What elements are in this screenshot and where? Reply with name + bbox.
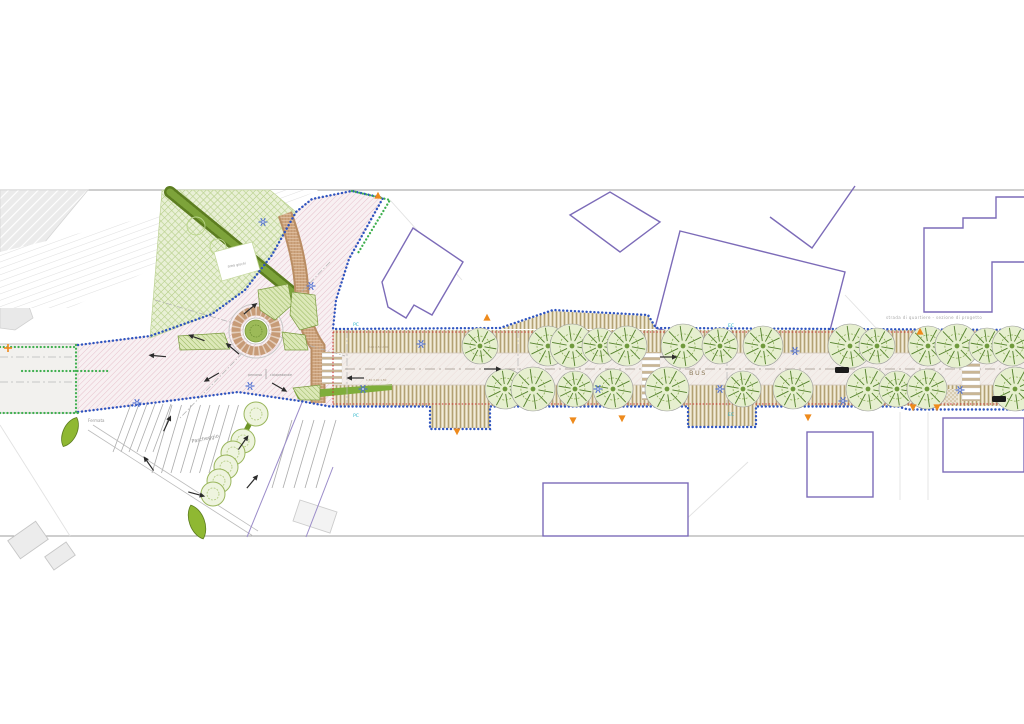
tree-trunk bbox=[741, 387, 746, 392]
street-tree bbox=[645, 367, 689, 411]
building-outline bbox=[570, 192, 660, 252]
street-tree bbox=[773, 369, 813, 409]
arrow-shaft bbox=[147, 461, 154, 471]
building-outline bbox=[543, 483, 688, 536]
tree-trunk bbox=[848, 344, 853, 349]
crossing-stripe bbox=[322, 372, 342, 376]
car-symbol bbox=[992, 396, 1006, 402]
utility-center bbox=[597, 388, 599, 390]
utility-center bbox=[249, 385, 251, 387]
tree-trunk bbox=[875, 344, 880, 349]
tree-trunk bbox=[866, 387, 871, 392]
utility-center bbox=[794, 350, 796, 352]
utility-center bbox=[136, 402, 138, 404]
street-tree bbox=[511, 367, 555, 411]
sidewalk-bulbout-south bbox=[688, 406, 756, 426]
crossing-stripe bbox=[962, 388, 980, 392]
survey-code: EC bbox=[728, 412, 734, 418]
road-note-b: ciclopedonale bbox=[270, 373, 292, 377]
tree-trunk bbox=[598, 344, 603, 349]
orange-marker bbox=[804, 414, 811, 421]
tree-trunk bbox=[531, 387, 536, 392]
street-tree bbox=[859, 328, 895, 364]
orange-marker bbox=[569, 417, 576, 424]
building-outline bbox=[943, 418, 1024, 472]
crossing-stripe bbox=[322, 366, 342, 370]
tree-trunk bbox=[546, 344, 551, 349]
crossing-stripe bbox=[962, 395, 980, 399]
pedestrian-crossing bbox=[322, 352, 342, 384]
utility-center bbox=[959, 389, 961, 391]
tree-trunk bbox=[570, 344, 575, 349]
utility-center bbox=[842, 400, 844, 402]
arrow-shaft bbox=[247, 479, 255, 488]
survey-code: EC bbox=[728, 323, 734, 329]
sidewalk-bulbout-south bbox=[430, 406, 490, 428]
car-symbol bbox=[835, 367, 849, 373]
tree-trunk bbox=[895, 387, 900, 392]
utility-center bbox=[420, 343, 422, 345]
leaf-tree bbox=[57, 415, 83, 450]
existing-road-west bbox=[0, 344, 78, 413]
street-tree bbox=[725, 371, 761, 407]
crossing-stripe bbox=[962, 367, 980, 371]
crossing-stripe bbox=[322, 360, 342, 364]
street-note: strada di quartiere - sezione di progett… bbox=[886, 315, 982, 320]
dimension-string-south: 1.50 3.00 1.50 bbox=[366, 378, 387, 382]
cad-site-plan-page: PCPCECEC Parcheggio BUS Fermata area gio… bbox=[0, 0, 1024, 724]
arrow-head bbox=[141, 455, 148, 462]
parking-tree bbox=[244, 402, 268, 426]
tree-trunk bbox=[625, 344, 630, 349]
crossing-stripe bbox=[962, 374, 980, 378]
street-tree bbox=[607, 326, 647, 366]
street-tree bbox=[557, 371, 593, 407]
traffic-arrow bbox=[245, 473, 260, 490]
tree-trunk bbox=[1010, 344, 1015, 349]
survey-code: PC bbox=[353, 413, 359, 419]
utility-center bbox=[262, 221, 264, 223]
bus-lane-marking: BUS bbox=[689, 369, 707, 377]
tree-trunk bbox=[478, 344, 483, 349]
tree-crown bbox=[244, 402, 268, 426]
crossing-stripe bbox=[642, 360, 660, 364]
roundabout-island bbox=[245, 320, 267, 342]
leaf-trees bbox=[57, 415, 210, 542]
orange-marker bbox=[618, 415, 625, 422]
street-tree bbox=[743, 326, 783, 366]
orange-marker bbox=[453, 428, 460, 435]
building-outline bbox=[807, 432, 873, 497]
traffic-arrow bbox=[161, 414, 173, 432]
tree-trunk bbox=[1013, 387, 1018, 392]
tree-trunk bbox=[503, 387, 508, 392]
minor-buildings bbox=[8, 500, 337, 570]
street-redesign-plan-drawing: PCPCECEC Parcheggio BUS Fermata area gio… bbox=[0, 0, 1024, 724]
crossing-stripe bbox=[322, 353, 342, 357]
street-tree bbox=[661, 324, 705, 368]
tree-trunk bbox=[955, 344, 960, 349]
orange-marker bbox=[374, 192, 381, 199]
bus-stop-label: Fermata bbox=[88, 418, 105, 423]
tree-trunk bbox=[985, 344, 990, 349]
utility-center bbox=[310, 285, 312, 287]
tree-trunk bbox=[611, 387, 616, 392]
road-note-a: percorso bbox=[248, 373, 262, 377]
building-outline-stepped bbox=[924, 197, 1024, 312]
tree-trunk bbox=[925, 387, 930, 392]
crossing-stripe bbox=[322, 379, 342, 383]
tree-trunk bbox=[791, 387, 796, 392]
street-tree bbox=[907, 369, 947, 409]
street-tree bbox=[702, 328, 738, 364]
tree-trunk bbox=[718, 344, 723, 349]
tree-crown bbox=[201, 482, 225, 506]
crossing-stripe bbox=[962, 381, 980, 385]
dimension-string-north: 2.00 4.50 2.00 bbox=[368, 345, 389, 349]
utility-center bbox=[362, 388, 364, 390]
orange-marker bbox=[483, 314, 490, 321]
tree-trunk bbox=[926, 344, 931, 349]
tree-trunk bbox=[665, 387, 670, 392]
street-tree bbox=[462, 328, 498, 364]
utility-center bbox=[719, 388, 721, 390]
parking-label: Parcheggio bbox=[191, 433, 219, 445]
tree-trunk bbox=[573, 387, 578, 392]
survey-code: PC bbox=[353, 322, 359, 328]
tree-trunk bbox=[681, 344, 686, 349]
parking-tree bbox=[201, 482, 225, 506]
building-outline bbox=[770, 186, 855, 248]
tree-trunk bbox=[761, 344, 766, 349]
building-outline bbox=[382, 228, 463, 318]
